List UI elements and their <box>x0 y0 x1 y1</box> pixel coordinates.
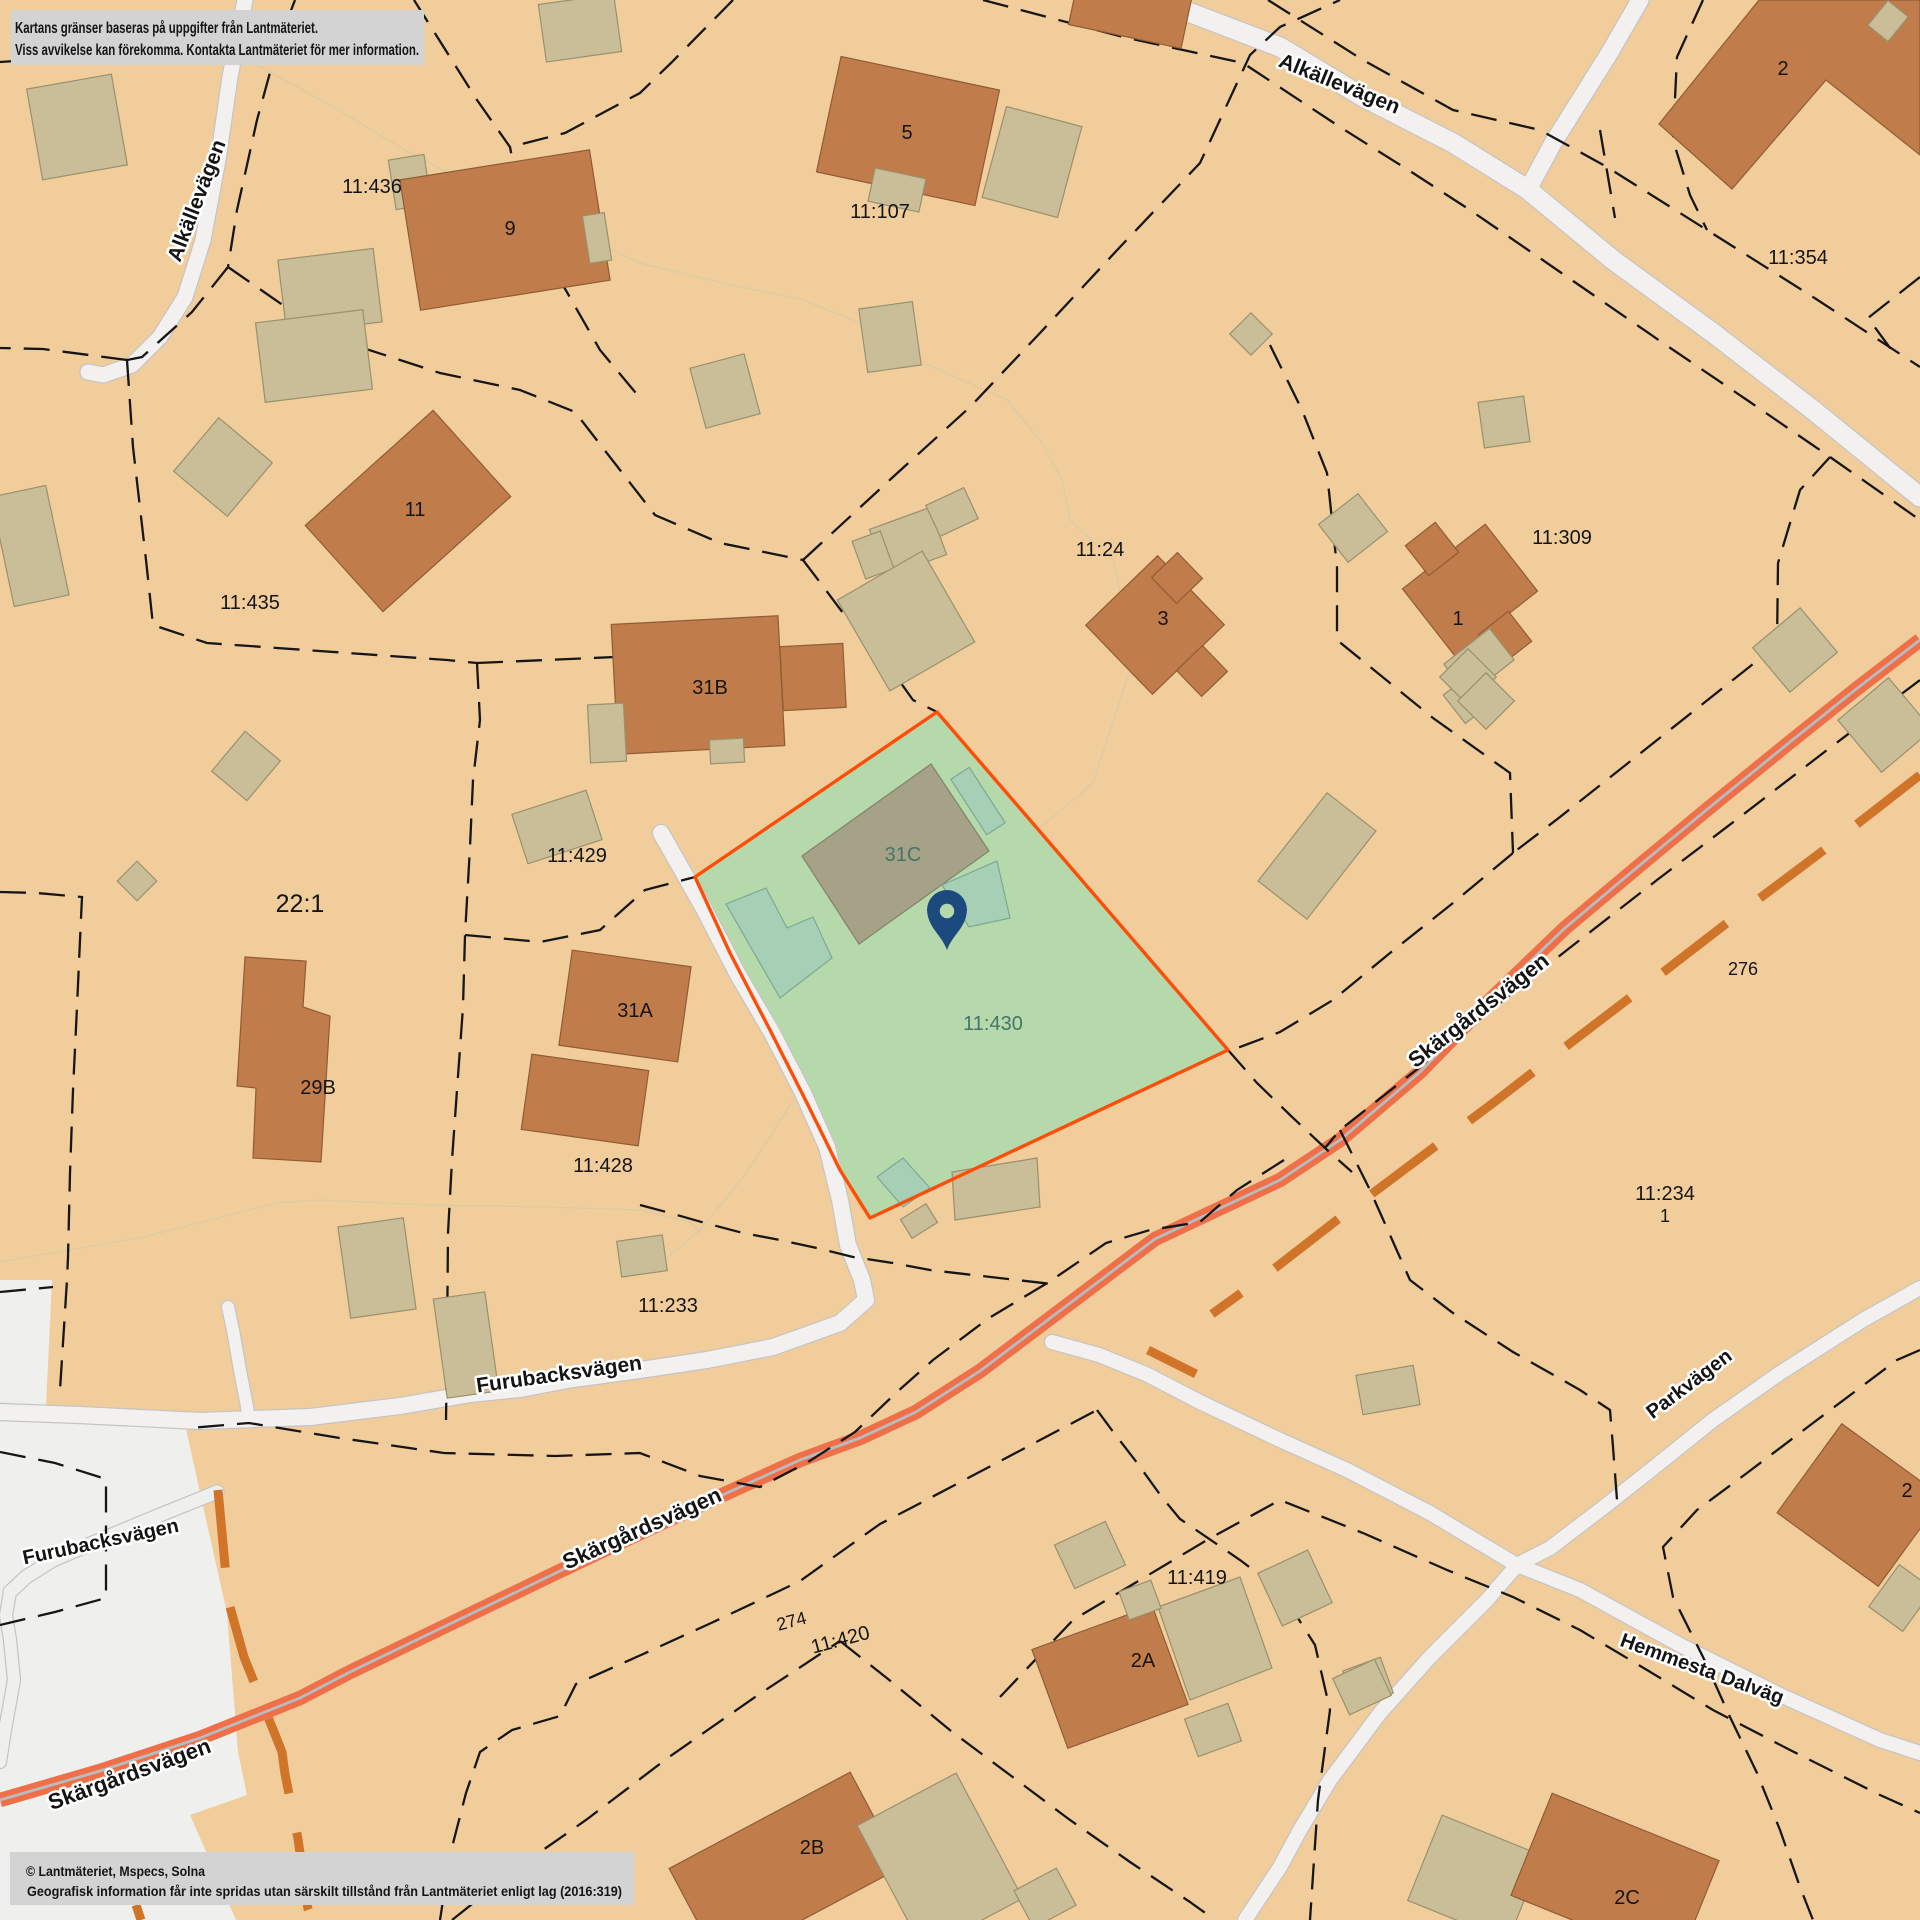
svg-text:11:435: 11:435 <box>220 592 280 614</box>
svg-text:11:428: 11:428 <box>573 1155 633 1177</box>
svg-text:276: 276 <box>1728 959 1758 979</box>
svg-text:11:234: 11:234 <box>1635 1183 1695 1205</box>
svg-text:2A: 2A <box>1131 1650 1156 1672</box>
svg-text:1: 1 <box>1452 608 1463 630</box>
svg-text:31B: 31B <box>692 677 728 699</box>
svg-text:© Lantmäteriet, Mspecs, Solna: © Lantmäteriet, Mspecs, Solna <box>26 1863 205 1879</box>
svg-text:11:24: 11:24 <box>1076 539 1125 561</box>
svg-text:11:419: 11:419 <box>1167 1567 1227 1589</box>
svg-text:Geografisk information får int: Geografisk information får inte spridas … <box>27 1883 622 1899</box>
svg-text:22:1: 22:1 <box>276 890 325 918</box>
svg-text:31A: 31A <box>617 1000 653 1022</box>
svg-text:11:354: 11:354 <box>1768 247 1828 269</box>
svg-text:9: 9 <box>504 218 515 240</box>
svg-text:11: 11 <box>405 499 426 521</box>
svg-text:11:430: 11:430 <box>963 1013 1023 1035</box>
svg-text:3: 3 <box>1157 608 1168 630</box>
svg-text:Viss avvikelse kan förekomma.: Viss avvikelse kan förekomma. Kontakta L… <box>15 42 419 59</box>
svg-text:2: 2 <box>1777 58 1788 80</box>
svg-text:11:429: 11:429 <box>547 845 607 867</box>
svg-text:5: 5 <box>901 122 912 144</box>
svg-text:29B: 29B <box>300 1077 336 1099</box>
svg-text:31C: 31C <box>885 844 922 866</box>
svg-text:2: 2 <box>1901 1480 1912 1502</box>
svg-text:11:107: 11:107 <box>850 201 910 223</box>
svg-text:1: 1 <box>1660 1206 1670 1226</box>
svg-text:2B: 2B <box>800 1837 824 1859</box>
svg-text:11:436: 11:436 <box>342 176 402 198</box>
svg-text:2C: 2C <box>1614 1887 1640 1909</box>
svg-text:Kartans gränser baseras på upp: Kartans gränser baseras på uppgifter frå… <box>15 19 318 37</box>
svg-text:11:233: 11:233 <box>638 1295 698 1317</box>
svg-text:11:309: 11:309 <box>1532 527 1592 549</box>
